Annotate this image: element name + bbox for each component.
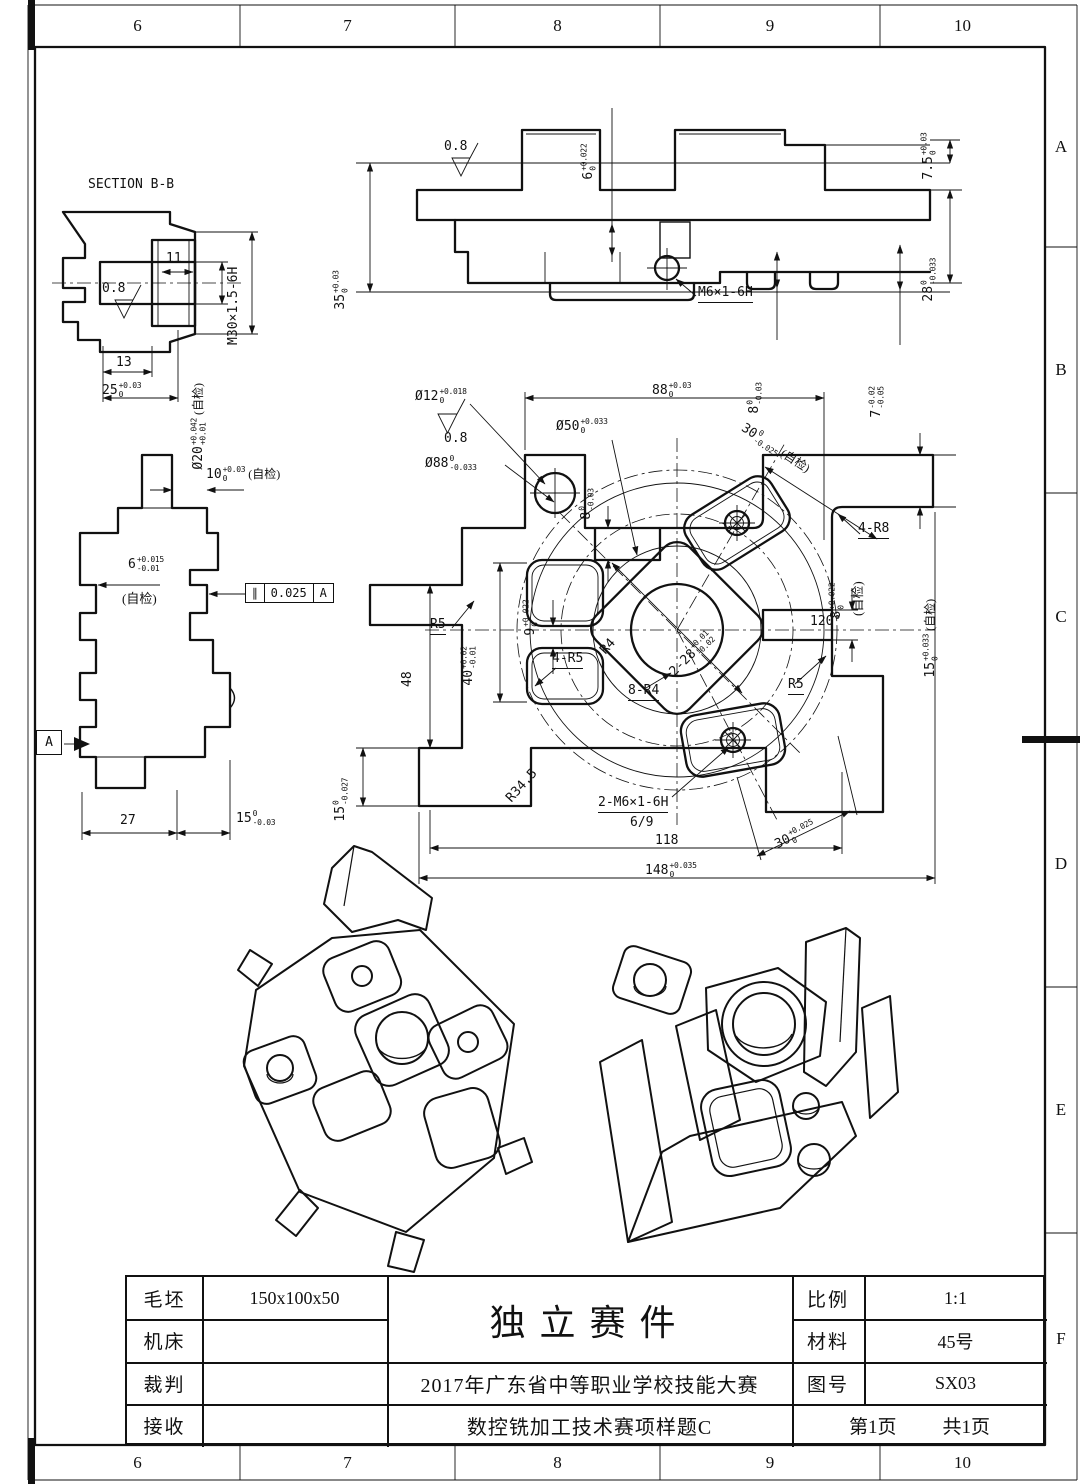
field-material-label: 材料: [792, 1319, 864, 1362]
dim-8-r4: 8-R4: [628, 684, 659, 701]
page-total: 共1页: [943, 1412, 991, 1439]
dim-8-top: 80-0.03: [578, 488, 596, 519]
section-bb-title: SECTION B-B: [88, 178, 174, 193]
side-view: [64, 455, 246, 840]
field-machine-label: 机床: [127, 1319, 202, 1362]
grid-col-label: 10: [880, 5, 1045, 47]
dim-m30-thread: M30×1.5-6H: [227, 267, 242, 345]
dim-25: 25+0.030: [102, 382, 141, 400]
parallelism-symbol: ∥: [245, 583, 265, 603]
field-receive-value: [202, 1404, 387, 1447]
grid-row-label: B: [1045, 247, 1077, 493]
iso-view-top: [238, 846, 532, 1272]
dim-48: 48: [401, 671, 416, 687]
dim-10: 10+0.030 (自检): [206, 466, 280, 484]
grid-col-label: 8: [455, 1445, 660, 1480]
title-block: 毛坯 150x100x50 机床 裁判 接收 独立赛件 2017年广东省中等职业…: [125, 1275, 1045, 1445]
dim-dia20: Ø20+0.042+0.01 (自检): [190, 383, 208, 470]
grid-row-label: D: [1045, 740, 1077, 987]
dim-15: 150-0.03: [236, 810, 275, 828]
self-check-note: (自检): [122, 592, 157, 607]
field-drawing-no-value: SX03: [864, 1362, 1047, 1404]
dim-148: 148+0.0350: [645, 862, 697, 880]
dim-6: 6+0.015-0.01: [128, 556, 164, 574]
grid-col-label: 7: [240, 5, 455, 47]
dim-7: 7-0.02-0.05: [868, 386, 886, 417]
grid-col-label: 9: [660, 1445, 880, 1480]
field-material-value: 45号: [864, 1319, 1047, 1362]
dim-8: 80-0.03: [746, 382, 764, 413]
field-machine-value: [202, 1319, 387, 1362]
dim-40: 40+0.02-0.01: [460, 646, 478, 685]
dim-6: 6+0.0220: [580, 144, 598, 180]
parallelism-tolerance-frame: ∥ 0.025 A: [246, 583, 334, 603]
event-name: 2017年广东省中等职业学校技能大赛: [387, 1362, 792, 1404]
dim-13: 13: [116, 356, 132, 371]
dim-dia12: Ø12+0.0180: [415, 388, 467, 406]
dim-r5-left: R5: [430, 618, 446, 635]
dim-9: 9+0.0220: [522, 600, 540, 636]
dim-dia88: Ø880-0.033: [425, 455, 477, 473]
field-drawing-no-label: 图号: [792, 1362, 864, 1404]
field-referee-label: 裁判: [127, 1362, 202, 1404]
dim-11: 11: [166, 252, 182, 267]
tolerance-value: 0.025: [264, 583, 314, 603]
datum-a-flag: A: [36, 730, 62, 755]
page-number: 第1页: [849, 1412, 897, 1439]
field-blank-value: 150x100x50: [202, 1277, 387, 1319]
field-referee-value: [202, 1362, 387, 1404]
grid-col-label: 6: [35, 1445, 240, 1480]
grid-col-label: 7: [240, 1445, 455, 1480]
grid-row-label: F: [1045, 1233, 1077, 1445]
grid-col-label: 9: [660, 5, 880, 47]
event-subject: 数控铣加工技术赛项样题C: [387, 1404, 792, 1447]
dim-m6-thread: M6×1-6H: [698, 286, 753, 303]
dim-120deg: 120°: [810, 615, 841, 630]
dim-118: 118: [655, 834, 678, 849]
datum-reference: A: [313, 583, 334, 603]
part-title: 独立赛件: [387, 1277, 792, 1362]
field-scale-value: 1:1: [864, 1277, 1047, 1319]
dim-88: 88+0.030: [652, 382, 691, 400]
grid-row-label: A: [1045, 47, 1077, 247]
grid-col-label: 8: [455, 5, 660, 47]
dim-r5-right: R5: [788, 678, 804, 695]
dim-4-r5: 4-R5: [552, 652, 583, 669]
dim-28: 280-0.033: [920, 258, 938, 302]
dim-2-m6-thread: 2-M6×1-6H: [598, 796, 668, 813]
dim-35: 35+0.030: [332, 270, 350, 309]
drawing-linework: [0, 0, 1080, 1484]
field-blank-label: 毛坯: [127, 1277, 202, 1319]
dim-15-right: 15+0.0330 (自检): [922, 599, 940, 678]
dim-roughness-0-8: 0.8: [102, 282, 125, 297]
dim-roughness-0-8: 0.8: [444, 140, 467, 155]
dim-4-r8: 4-R8: [858, 522, 889, 539]
iso-view-bottom: [600, 928, 898, 1242]
dim-depth-6-9: 6/9: [630, 816, 653, 831]
sheet-frame: [28, 0, 1080, 1484]
page-info: 第1页 共1页: [792, 1404, 1047, 1447]
dim-roughness-0-8: 0.8: [444, 432, 467, 447]
dim-15-bottom: 150-0.027: [332, 778, 350, 822]
drawing-sheet: 6 7 8 9 10 6 7 8 9 10 A B C D E F SECTIO…: [0, 0, 1080, 1484]
dim-7-5: 7.5+0.030: [920, 133, 938, 180]
grid-row-label: C: [1045, 493, 1077, 740]
grid-col-label: 10: [880, 1445, 1045, 1480]
dim-dia50: Ø50+0.0330: [556, 418, 608, 436]
self-check-note: (自检): [851, 581, 866, 616]
field-scale-label: 比例: [792, 1277, 864, 1319]
grid-col-label: 6: [35, 5, 240, 47]
dim-27: 27: [120, 814, 136, 829]
field-receive-label: 接收: [127, 1404, 202, 1447]
grid-row-label: E: [1045, 987, 1077, 1233]
